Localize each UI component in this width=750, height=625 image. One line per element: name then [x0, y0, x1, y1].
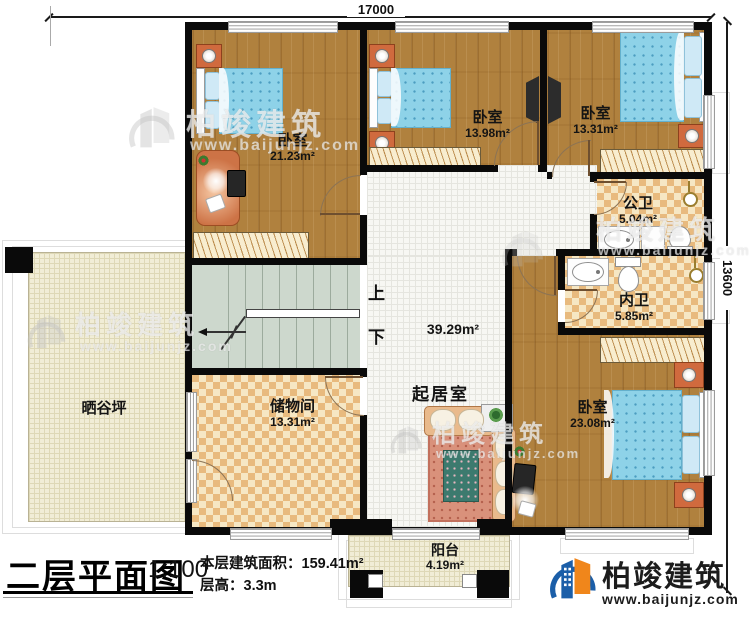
floor-height-value: 3.3m: [244, 578, 277, 594]
bed-pillow: [684, 78, 702, 118]
door-leaf: [537, 121, 539, 165]
wardrobe: [600, 337, 706, 363]
door-leaf: [554, 256, 556, 295]
wall-segment: [367, 165, 498, 172]
bed-pillow: [682, 436, 700, 474]
wall-segment: [192, 368, 367, 375]
wall-segment: [360, 22, 367, 175]
wall-segment: [590, 172, 712, 179]
watermark-logo-icon: [122, 98, 178, 160]
room-area: 13.31m²: [245, 416, 340, 429]
watermark-company: 柏竣建筑: [75, 305, 199, 342]
room-area: 5.85m²: [588, 310, 680, 323]
nightstand: [196, 44, 222, 68]
room-label-inner-bath: 内卫 5.85m²: [588, 293, 680, 323]
window: [703, 262, 715, 320]
column: [477, 570, 509, 598]
watermark-website: www.baijunjz.com: [598, 242, 750, 258]
stair-arrow: [198, 328, 207, 336]
door-leaf: [325, 376, 363, 378]
room-area: 13.98m²: [440, 127, 535, 140]
stair-direction-line: [206, 331, 246, 333]
sink: [572, 262, 604, 282]
wall-segment: [538, 165, 547, 172]
column: [5, 247, 33, 273]
bed-pillow: [377, 98, 392, 124]
room-label-bedroom-bottom: 卧室 23.08m²: [545, 400, 640, 430]
wall-segment: [505, 256, 512, 527]
tv: [227, 170, 246, 197]
floor-area-value: 159.41m²: [302, 556, 364, 572]
bed-pillow: [377, 71, 392, 97]
wall-segment: [360, 215, 367, 265]
column: [477, 519, 512, 535]
door-leaf: [565, 289, 597, 291]
room-label-bedroom-right: 卧室 13.31m²: [548, 106, 643, 136]
balcony-post: [368, 574, 383, 588]
drying-yard-floor: [28, 252, 188, 522]
corridor-floor: [367, 165, 597, 256]
wardrobe: [193, 232, 309, 259]
room-label-storage: 储物间 13.31m²: [245, 399, 340, 429]
room-name: 起居室: [393, 385, 488, 404]
watermark-logo-icon: [386, 414, 424, 468]
stairs-down-label: 下: [368, 323, 385, 348]
wardrobe: [369, 147, 481, 166]
room-area: 13.31m²: [548, 123, 643, 136]
floor-area-line: 本层建筑面积：159.41m²: [200, 552, 364, 573]
floor-height-line: 层高：3.3m: [200, 574, 277, 595]
wall-segment: [558, 256, 565, 290]
window: [395, 21, 509, 33]
floor-plan-canvas: 上 下 卧室 21.23m² 卧室 13.98m² 卧室 13.31m² 卧室 …: [0, 0, 750, 625]
stairs-up-label: 上: [368, 279, 385, 304]
living-area-label: 39.29m²: [408, 322, 498, 338]
room-area: 23.08m²: [545, 417, 640, 430]
room-label-balcony: 阳台 4.19m²: [400, 543, 490, 572]
nightstand: [369, 44, 395, 68]
wardrobe: [600, 149, 706, 174]
balcony-post: [462, 574, 477, 588]
company-website: www.baijunjz.com: [602, 591, 739, 607]
window: [565, 528, 689, 540]
dimension-tick: [706, 13, 715, 22]
watermark-website: www.baijunjz.com: [80, 338, 233, 354]
dimension-width: 17000: [347, 2, 405, 17]
wall-segment: [192, 258, 360, 265]
wall-segment: [558, 328, 704, 335]
window: [230, 528, 332, 540]
room-label-bedroom-mid: 卧室 13.98m²: [440, 110, 535, 140]
window: [703, 95, 715, 169]
door-leaf: [594, 181, 626, 183]
watermark-website: www.baijunjz.com: [190, 137, 360, 155]
watermark-logo-icon: [496, 208, 546, 292]
room-label-drying-yard: 晒谷坪: [58, 401, 150, 418]
room-name: 储物间: [245, 399, 340, 416]
door-leaf: [320, 213, 360, 215]
lamp-glow: [203, 168, 229, 194]
floor-area-label: 本层建筑面积：: [200, 556, 302, 572]
balcony-door: [392, 528, 480, 540]
room-name: 卧室: [440, 110, 535, 127]
title-underline: [3, 591, 193, 594]
wall-segment: [540, 22, 547, 165]
window: [228, 21, 338, 33]
title-underline: [3, 597, 193, 598]
nightstand: [678, 124, 706, 148]
room-name: 晒谷坪: [58, 401, 150, 418]
window: [186, 392, 197, 452]
room-area: 4.19m²: [400, 559, 490, 572]
bed-pillow: [205, 72, 220, 100]
room-name: 卧室: [545, 400, 640, 417]
room-name: 卧室: [548, 106, 643, 123]
plant-icon: [198, 155, 209, 166]
company-name: 柏竣建筑: [602, 553, 726, 595]
floor-height-label: 层高：: [200, 578, 244, 594]
watermark-company: 柏竣建筑: [432, 414, 548, 449]
bed-pillow: [684, 36, 702, 76]
room-name: 阳台: [400, 543, 490, 559]
wall-segment: [360, 415, 367, 527]
bed-sheet-fold: [674, 32, 684, 120]
room-area: 39.29m²: [408, 322, 498, 338]
room-label-living: 起居室: [393, 385, 488, 404]
company-logo-icon: [543, 551, 599, 609]
toilet: [618, 266, 639, 292]
bed-pillow: [682, 395, 700, 433]
column: [330, 519, 392, 535]
window: [703, 390, 715, 476]
dimension-extension: [50, 6, 51, 46]
watermark-logo-icon: [22, 303, 68, 363]
shower-cord: [688, 181, 690, 192]
watermark-website: www.baijunjz.com: [436, 446, 580, 461]
floor-drain: [689, 268, 704, 283]
nightstand: [674, 482, 704, 508]
window: [592, 21, 694, 33]
stair-railing: [246, 309, 360, 318]
room-name: 内卫: [588, 293, 680, 310]
door-leaf: [588, 140, 590, 176]
floor-drain: [683, 192, 698, 207]
nightstand: [674, 362, 704, 388]
